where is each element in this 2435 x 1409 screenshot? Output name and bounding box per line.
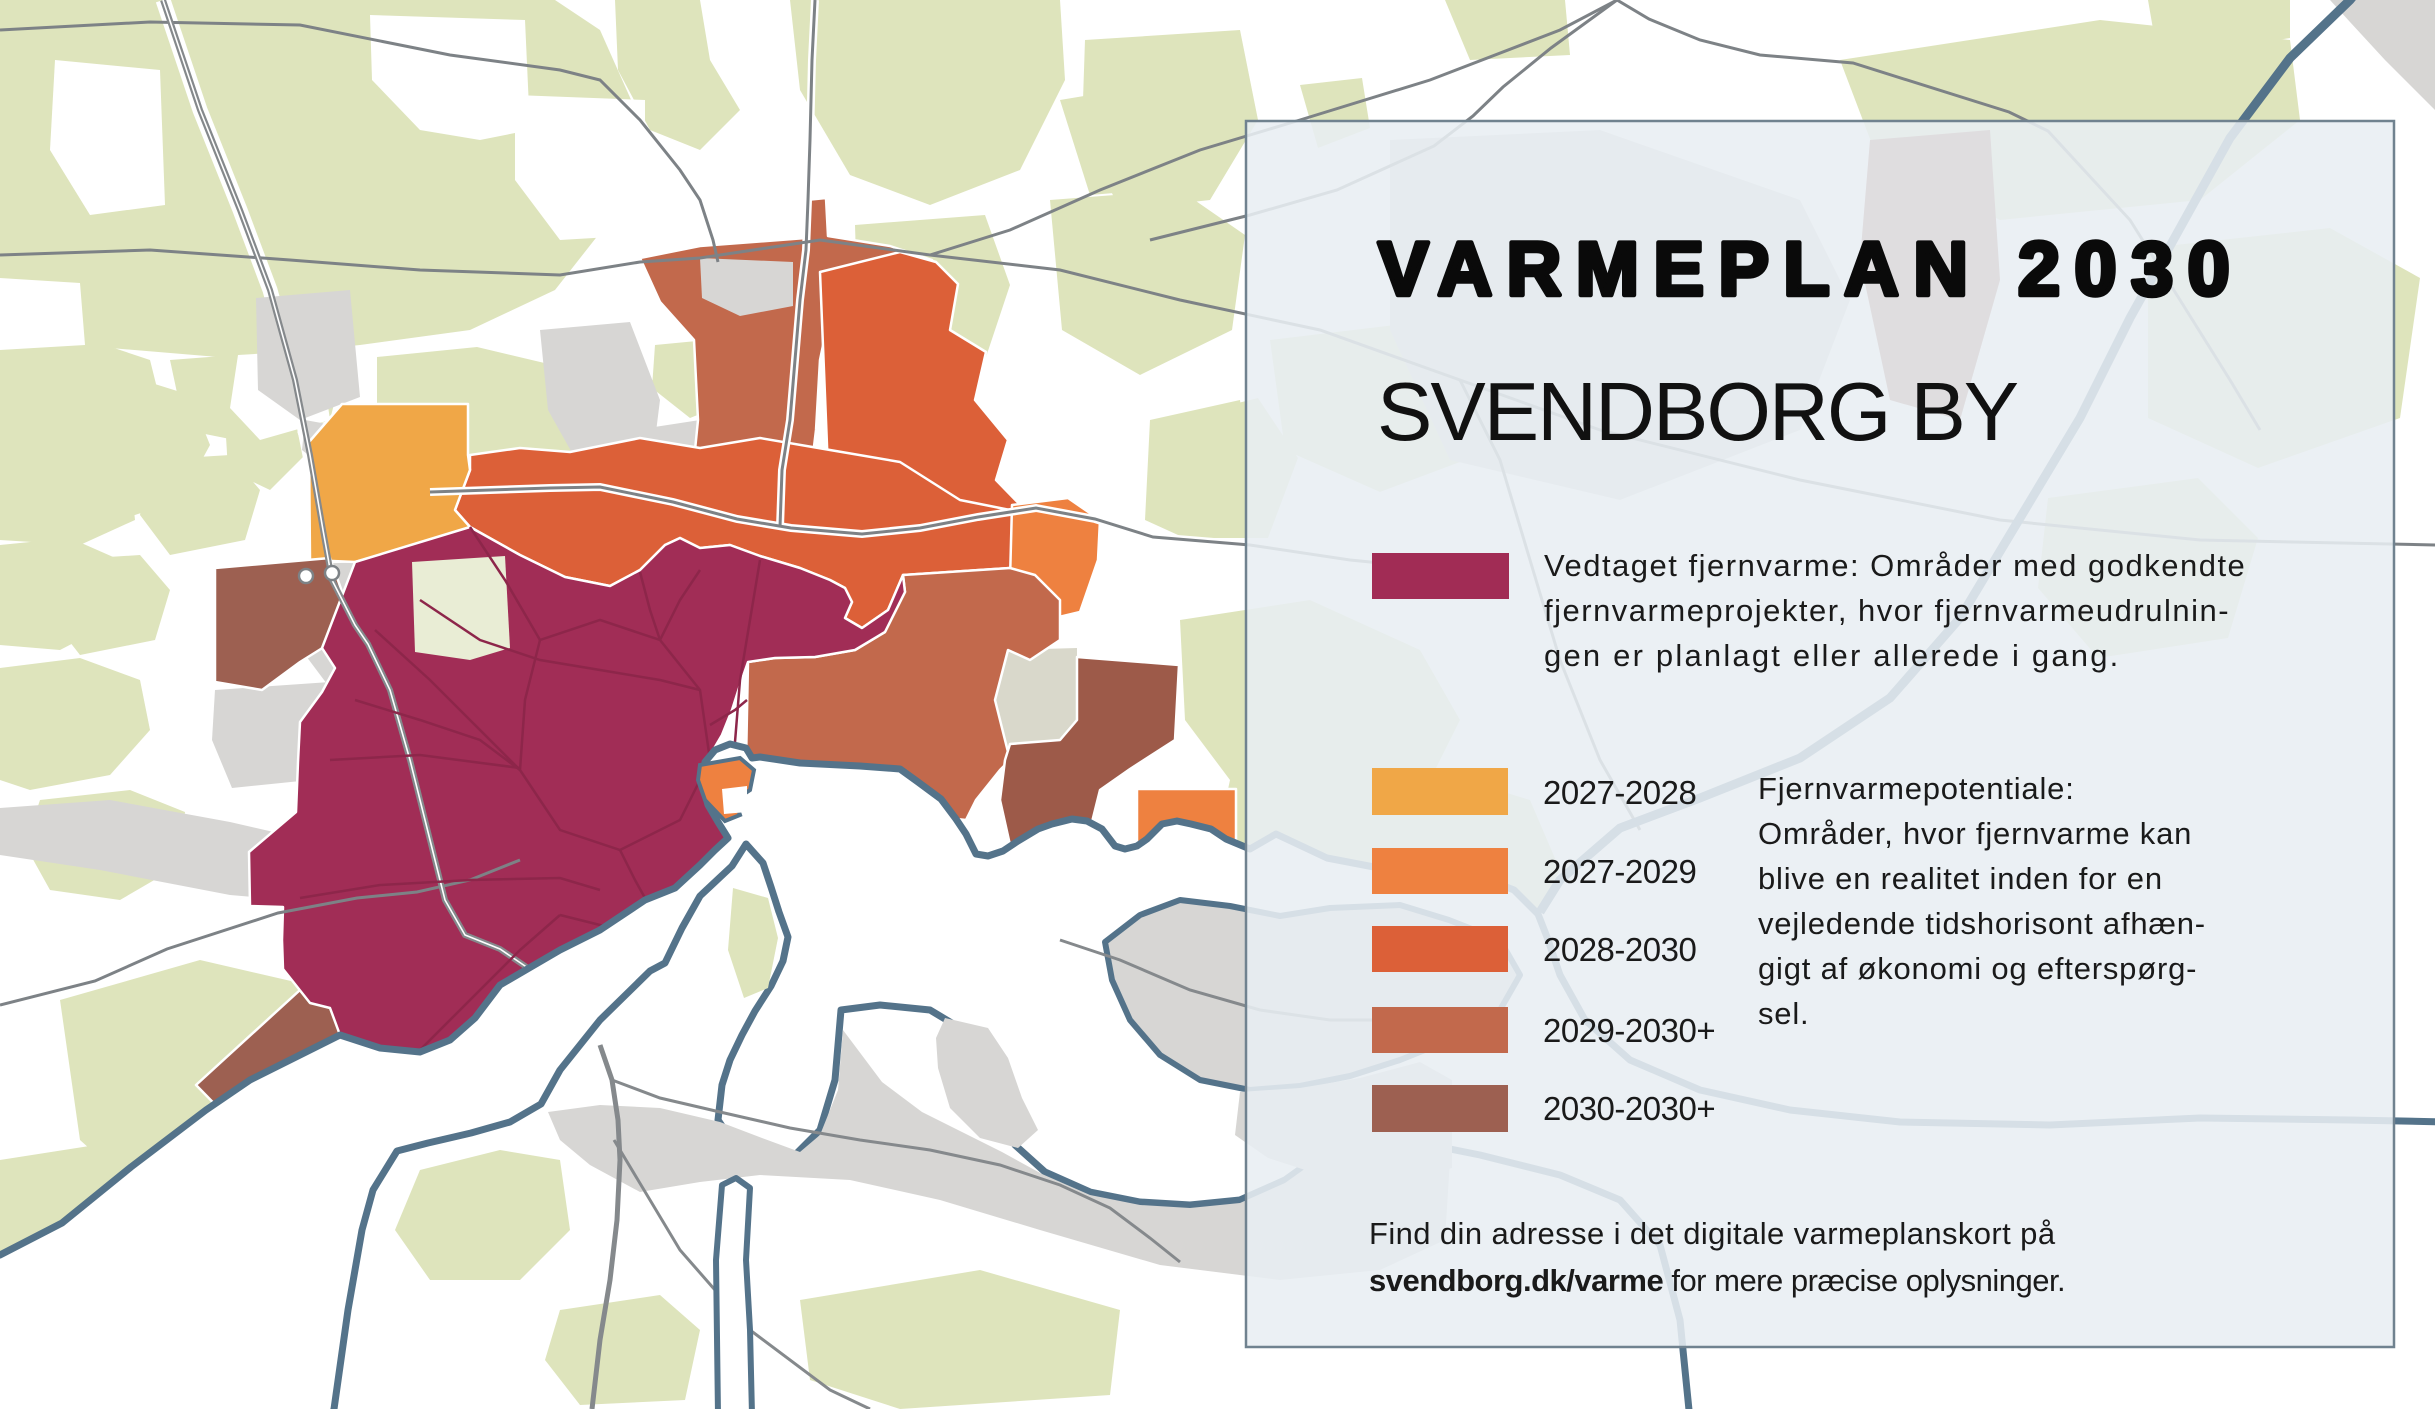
svg-text:svendborg.dk/varme for mere pr: svendborg.dk/varme for mere præcise oply… — [1369, 1263, 2065, 1298]
svg-text:2028-2030: 2028-2030 — [1543, 931, 1696, 968]
svg-text:Områder, hvor fjernvarme kan: Områder, hvor fjernvarme kan — [1758, 816, 2192, 851]
svg-text:blive en realitet inden for en: blive en realitet inden for en — [1758, 861, 2163, 896]
svg-text:Fjernvarmepotentiale:: Fjernvarmepotentiale: — [1758, 771, 2075, 806]
svg-text:Find din adresse i det digital: Find din adresse i det digitale varmepla… — [1369, 1216, 2056, 1251]
svg-text:2030-2030+: 2030-2030+ — [1543, 1090, 1715, 1127]
svg-text:SVENDBORG BY: SVENDBORG BY — [1377, 365, 2018, 458]
svg-text:VARMEPLAN 2030: VARMEPLAN 2030 — [1378, 227, 2244, 312]
svg-text:Vedtaget fjernvarme: Områder m: Vedtaget fjernvarme: Områder med godkend… — [1544, 548, 2246, 583]
svg-text:gigt af økonomi og efterspørg-: gigt af økonomi og efterspørg- — [1758, 951, 2197, 986]
svg-text:2029-2030+: 2029-2030+ — [1543, 1012, 1715, 1049]
svg-text:sel.: sel. — [1758, 996, 1809, 1031]
svg-text:gen er planlagt eller allerede: gen er planlagt eller allerede i gang. — [1544, 638, 2121, 673]
svg-text:2027-2029: 2027-2029 — [1543, 853, 1696, 890]
svg-text:fjernvarmeprojekter, hvor fjer: fjernvarmeprojekter, hvor fjernvarmeudru… — [1544, 593, 2230, 628]
svg-text:vejledende tidshorisont afhæn-: vejledende tidshorisont afhæn- — [1758, 906, 2206, 941]
svg-text:2027-2028: 2027-2028 — [1543, 774, 1696, 811]
